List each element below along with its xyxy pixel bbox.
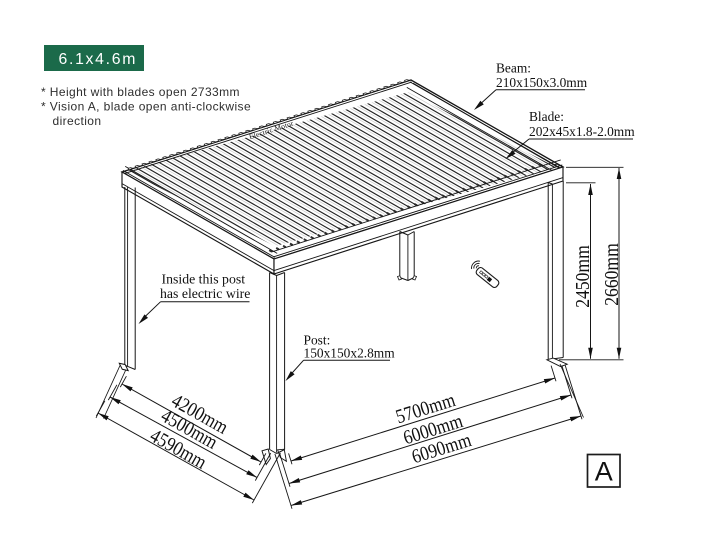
svg-text:* Height with blades open 2733: * Height with blades open 2733mm — [41, 85, 240, 99]
svg-text:150x150x2.8mm: 150x150x2.8mm — [304, 345, 396, 360]
svg-text:Blade:: Blade: — [529, 109, 564, 124]
svg-text:A: A — [595, 457, 613, 487]
svg-text:Beam:: Beam: — [496, 61, 531, 76]
svg-text:Inside this post: Inside this post — [162, 272, 246, 287]
svg-text:202x45x1.8-2.0mm: 202x45x1.8-2.0mm — [529, 124, 635, 139]
svg-text:210x150x3.0mm: 210x150x3.0mm — [496, 75, 588, 90]
svg-text:has electric wire: has electric wire — [160, 286, 250, 301]
svg-text:direction: direction — [53, 114, 102, 128]
svg-text:* Vision A, blade open anti-cl: * Vision A, blade open anti-clockwise — [41, 99, 251, 113]
svg-text:2450mm: 2450mm — [572, 245, 594, 308]
svg-text:6.1x4.6m: 6.1x4.6m — [59, 51, 138, 68]
svg-text:2660mm: 2660mm — [601, 243, 623, 306]
